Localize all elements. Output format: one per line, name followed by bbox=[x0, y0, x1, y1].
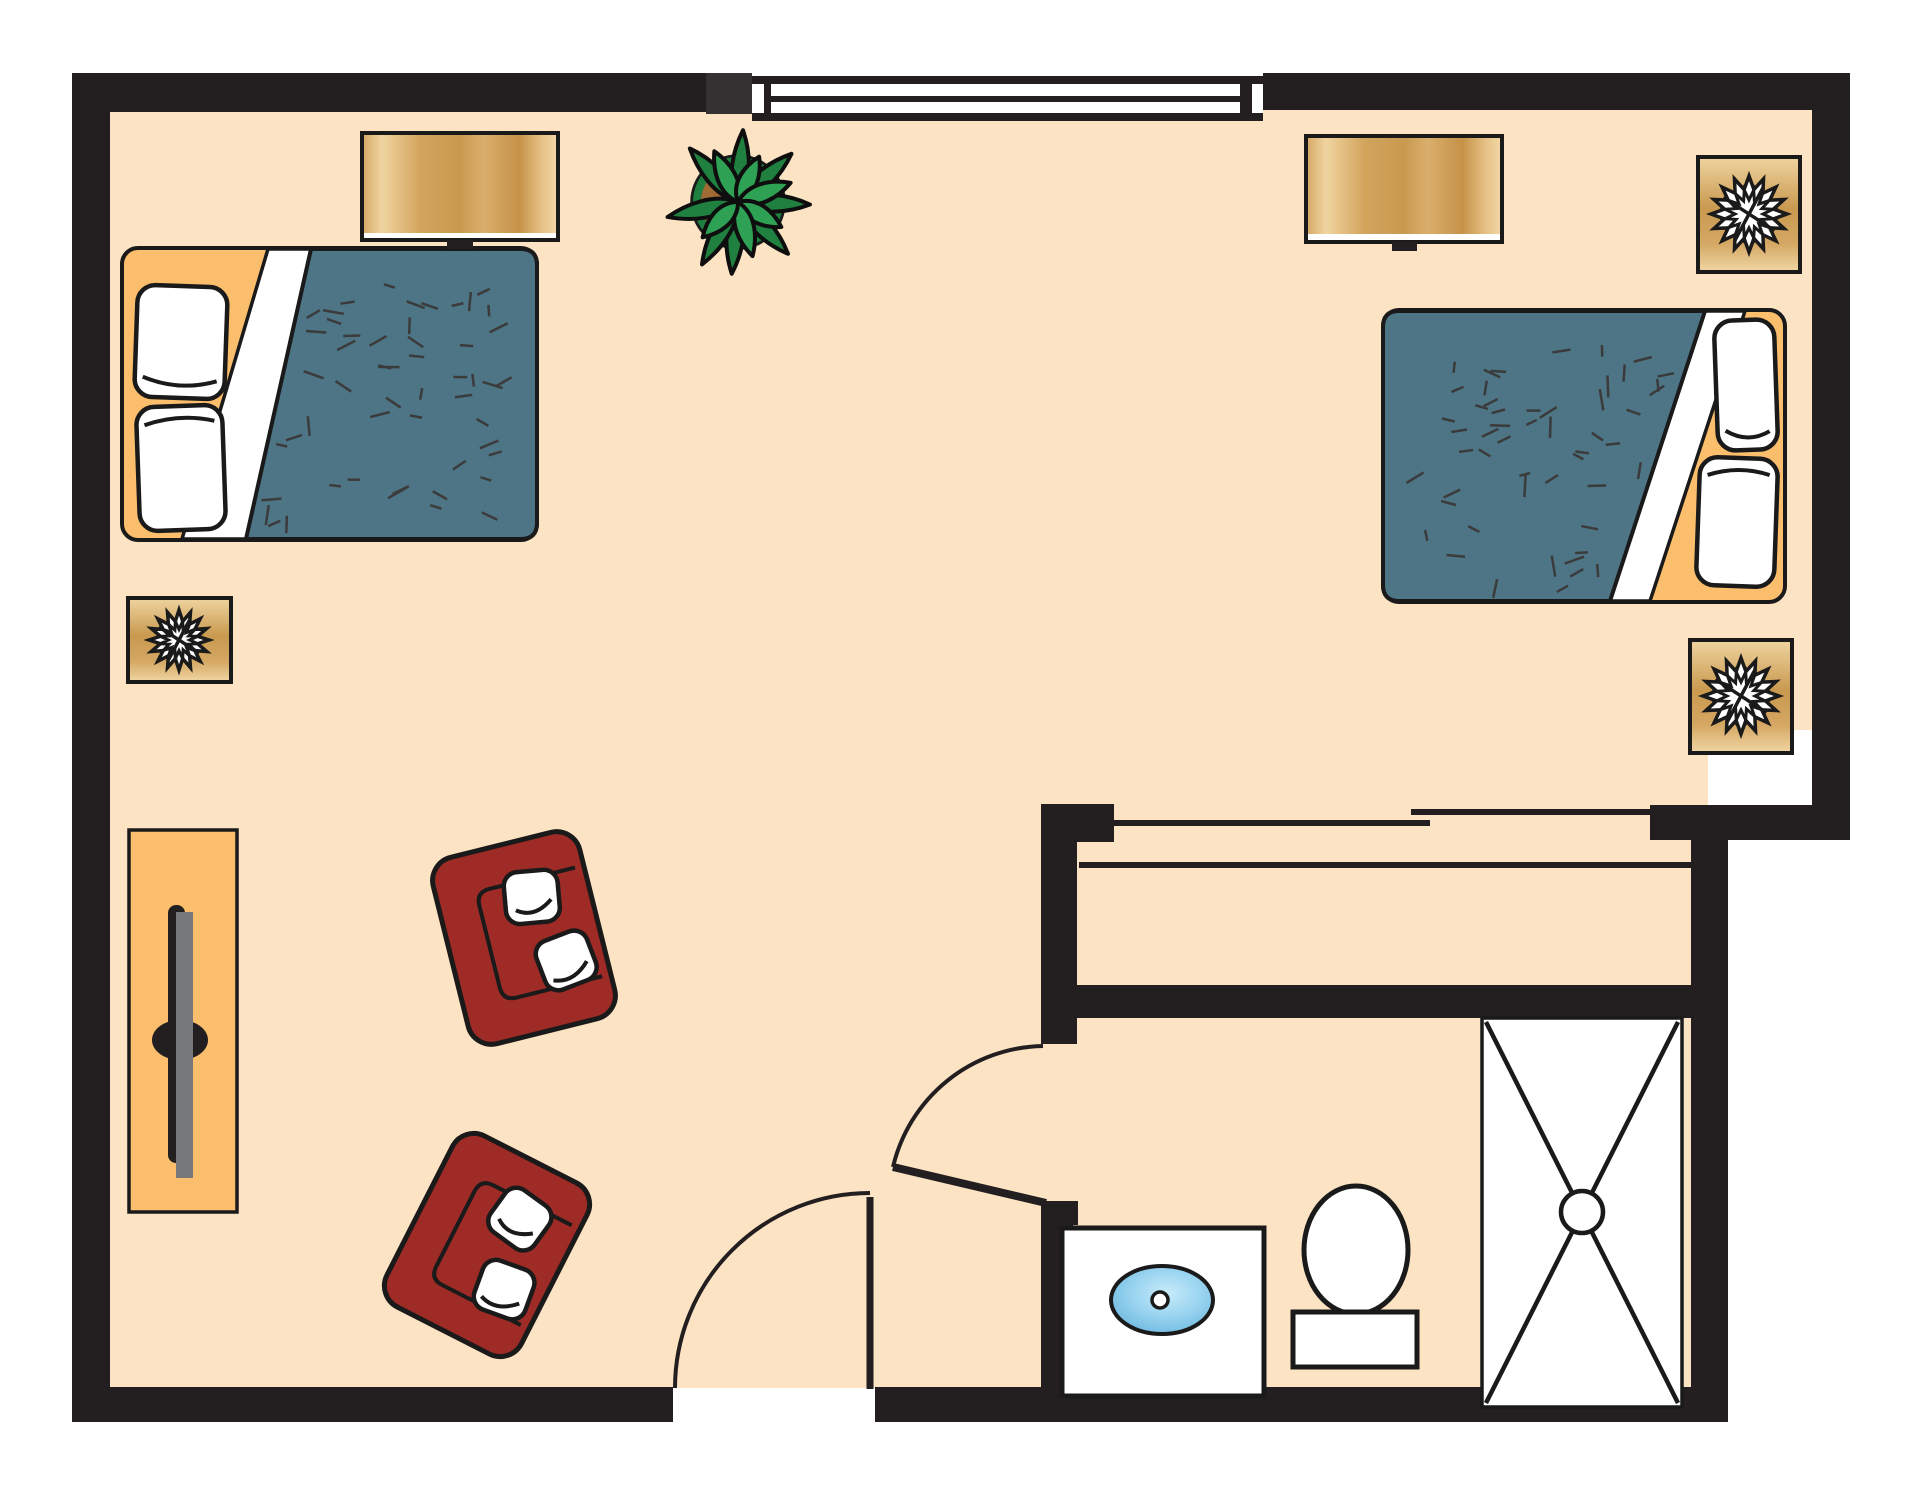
stitch-mark bbox=[1447, 555, 1465, 557]
sink-vanity bbox=[1062, 1228, 1264, 1396]
wall-top-right bbox=[1263, 73, 1850, 110]
wall-step bbox=[1650, 805, 1850, 840]
bed-left-pillow-1 bbox=[134, 284, 228, 399]
shower-drain bbox=[1561, 1191, 1603, 1233]
toilet-bowl bbox=[1304, 1186, 1408, 1314]
bed-right bbox=[1383, 310, 1785, 602]
lamp-table-mid-right bbox=[1690, 640, 1792, 753]
dresser-right-knob bbox=[1392, 242, 1417, 251]
wall-bottom-left bbox=[72, 1387, 673, 1422]
floor-area bbox=[90, 700, 1708, 1388]
bed-left-pillow-2 bbox=[136, 405, 226, 532]
stitch-mark bbox=[1606, 443, 1620, 445]
wall-bath-right bbox=[1691, 838, 1728, 1422]
floor-plan-svg bbox=[0, 0, 1916, 1492]
dresser-right bbox=[1306, 136, 1502, 251]
lamp-table-top-right bbox=[1698, 157, 1800, 272]
shower bbox=[1482, 1018, 1682, 1407]
wall-left bbox=[72, 73, 110, 1420]
floor-plan-canvas bbox=[0, 0, 1916, 1492]
stitch-mark bbox=[1588, 486, 1607, 487]
bed-right-pillow-2 bbox=[1696, 457, 1778, 588]
armchair-upper-pillow-body bbox=[503, 869, 561, 926]
stitch-mark bbox=[469, 292, 471, 311]
window-mullion bbox=[771, 96, 1240, 102]
lamp-table-left bbox=[128, 598, 231, 682]
window-right-cap bbox=[1240, 84, 1252, 113]
stitch-mark bbox=[1550, 417, 1551, 438]
stitch-mark bbox=[1624, 364, 1625, 381]
stitch-mark bbox=[329, 485, 341, 486]
wall-right-upper bbox=[1812, 73, 1850, 840]
stitch-mark bbox=[1607, 375, 1608, 397]
window-left-cap bbox=[764, 84, 771, 113]
stitch-mark bbox=[1657, 379, 1659, 392]
wall-closet-bath-divider bbox=[1077, 985, 1728, 1018]
stitch-mark bbox=[1575, 552, 1588, 553]
stitch-mark bbox=[1491, 371, 1506, 372]
stitch-mark bbox=[488, 305, 489, 317]
stitch-mark bbox=[1454, 362, 1455, 373]
dresser-left-knob bbox=[447, 240, 473, 249]
stitch-mark bbox=[262, 499, 282, 501]
stitch-mark bbox=[1524, 475, 1525, 497]
stitch-mark bbox=[306, 331, 326, 332]
bed-left bbox=[122, 248, 537, 540]
dresser-left bbox=[362, 133, 558, 249]
tv-screen-front bbox=[176, 912, 193, 1178]
wall-bath-door-jamb bbox=[1041, 1201, 1078, 1225]
sink-drain bbox=[1152, 1292, 1168, 1308]
dresser-right-top bbox=[1306, 136, 1502, 234]
stitch-mark bbox=[343, 336, 360, 337]
wall-closet-left bbox=[1041, 804, 1077, 1044]
stitch-mark bbox=[1575, 452, 1589, 454]
toilet-tank bbox=[1293, 1312, 1417, 1367]
stitch-mark bbox=[472, 374, 473, 387]
stitch-mark bbox=[409, 317, 410, 334]
toilet bbox=[1293, 1186, 1417, 1367]
window bbox=[752, 76, 1263, 121]
stitch-mark bbox=[286, 516, 287, 534]
wall-top-window-jamb bbox=[706, 73, 752, 114]
window-outer-line bbox=[752, 76, 1263, 84]
dresser-left-top bbox=[362, 133, 558, 233]
stitch-mark bbox=[1490, 425, 1510, 426]
bed-right-pillow-1 bbox=[1714, 319, 1779, 451]
stitch-mark bbox=[308, 416, 310, 435]
tv-console bbox=[129, 830, 237, 1212]
armchair-upper-pillow-1 bbox=[503, 869, 561, 926]
wall-top-left bbox=[72, 73, 706, 112]
stitch-mark bbox=[1597, 564, 1598, 577]
stitch-mark bbox=[409, 355, 424, 357]
stitch-mark bbox=[460, 345, 473, 346]
window-inner-line bbox=[752, 113, 1263, 121]
